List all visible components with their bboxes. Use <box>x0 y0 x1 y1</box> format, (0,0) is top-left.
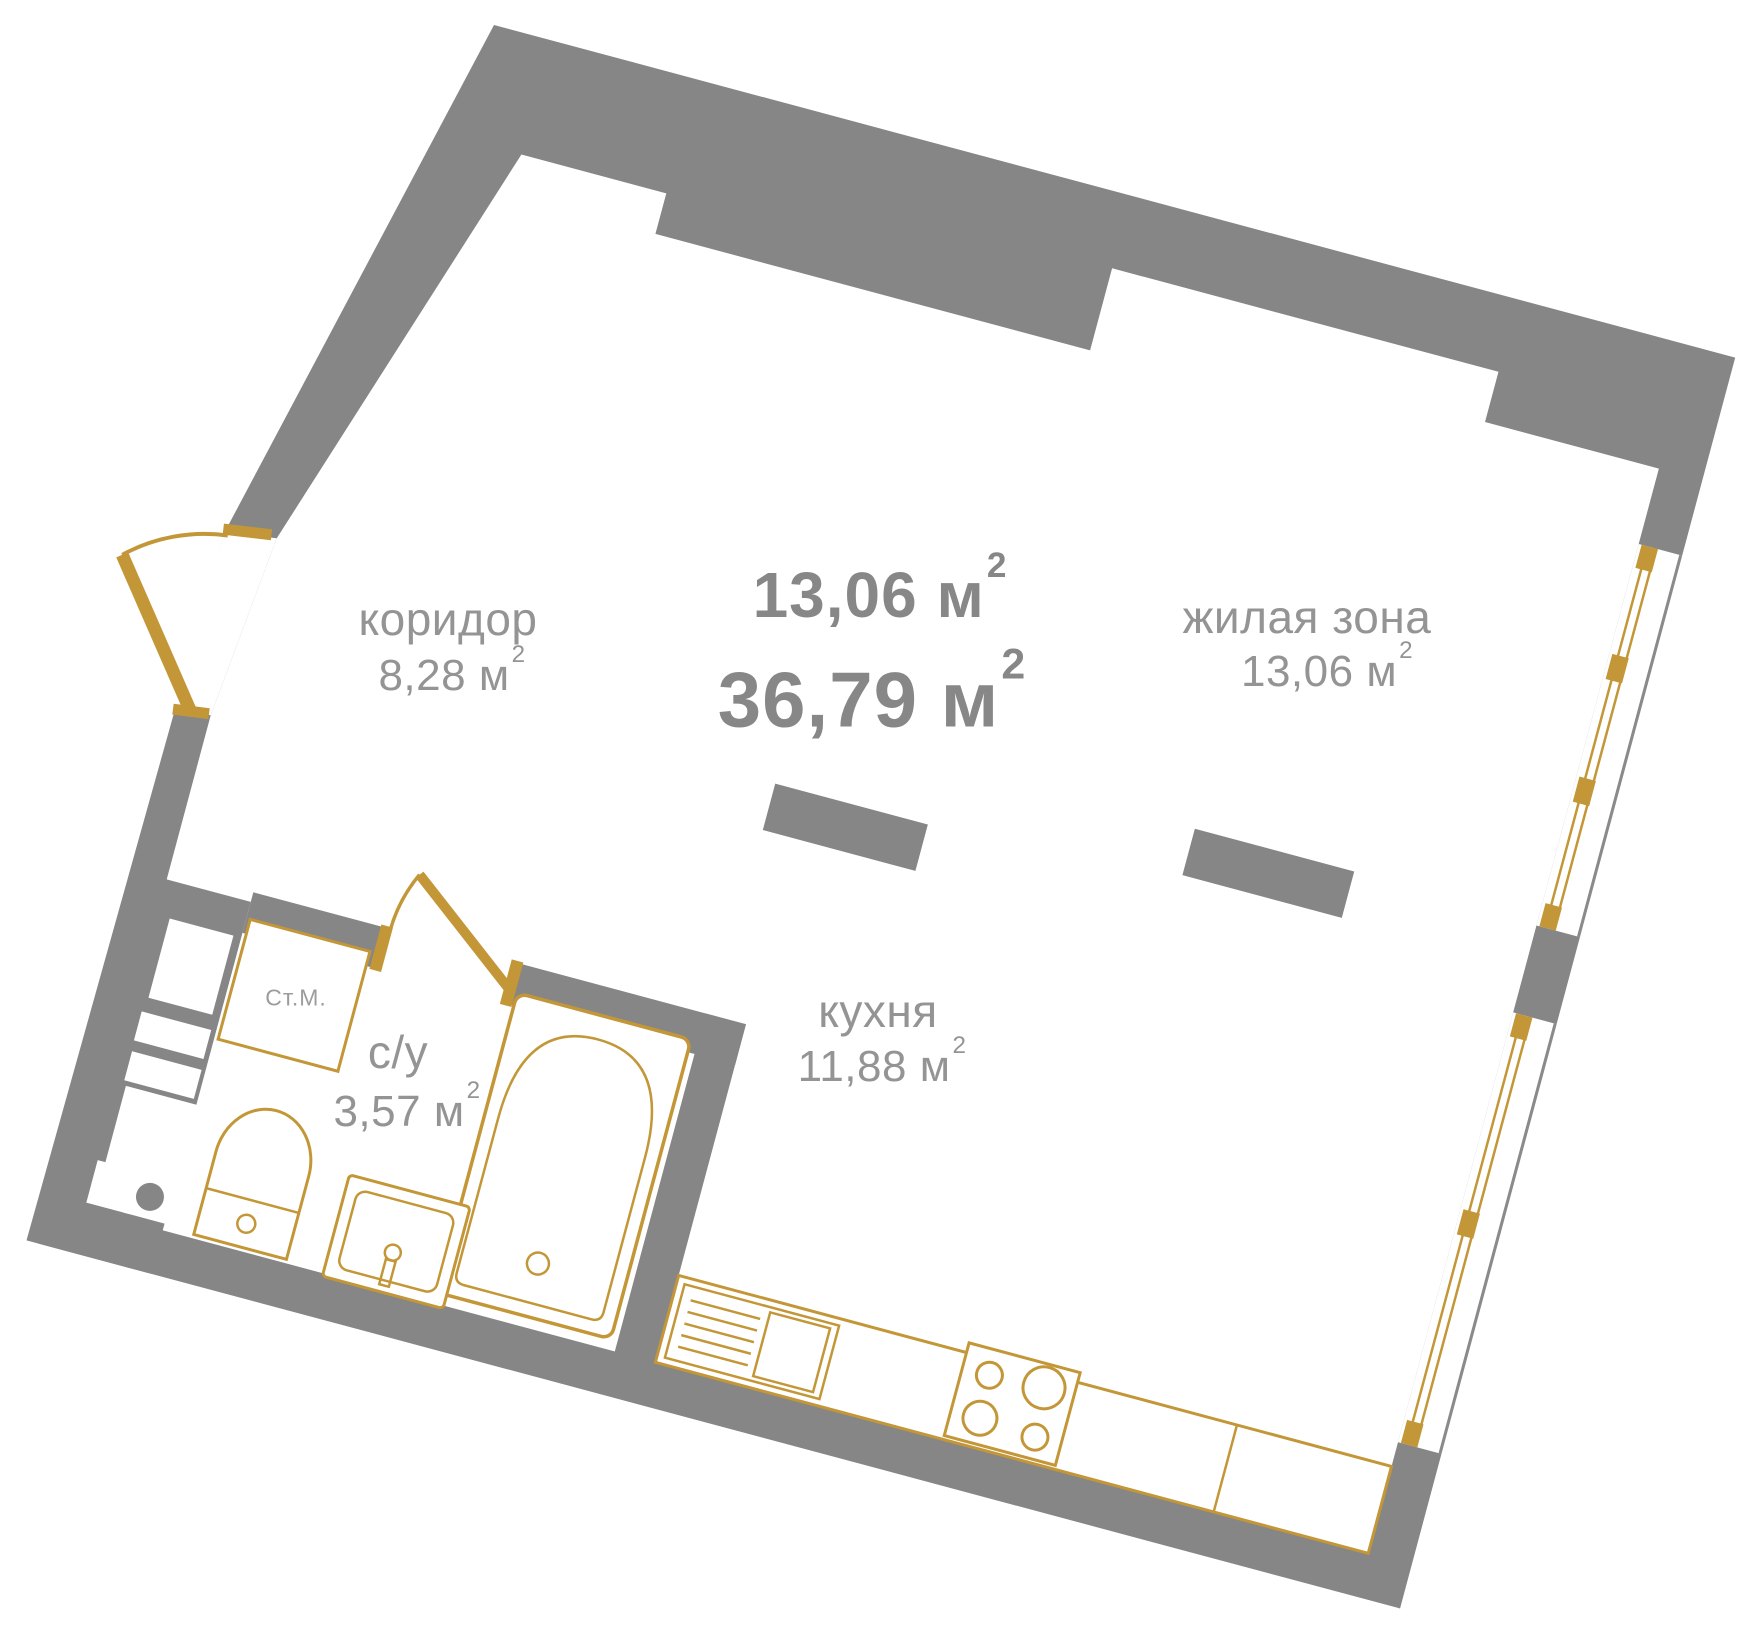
room-area-bathroom: 3,57 м2 <box>333 1087 480 1137</box>
floor-plan-drawing <box>0 0 1759 1642</box>
room-area-corridor: 8,28 м2 <box>378 651 525 701</box>
entrance-door-swing-arc <box>122 510 228 580</box>
washing-machine-label: Ст.М. <box>265 985 327 1012</box>
total-area-label: 36,79 м2 <box>718 655 1026 746</box>
floor-plan-canvas: 13,06 м2 36,79 м2 коридор 8,28 м2 жилая … <box>0 0 1759 1642</box>
room-label-living: жилая зона <box>1183 590 1432 644</box>
primary-area-label: 13,06 м2 <box>753 558 1008 632</box>
room-area-living: 13,06 м2 <box>1241 647 1413 697</box>
room-label-bathroom: с/у <box>368 1025 428 1079</box>
room-label-kitchen: кухня <box>818 984 937 1038</box>
room-area-kitchen: 11,88 м2 <box>798 1042 967 1092</box>
room-label-corridor: коридор <box>358 592 537 646</box>
